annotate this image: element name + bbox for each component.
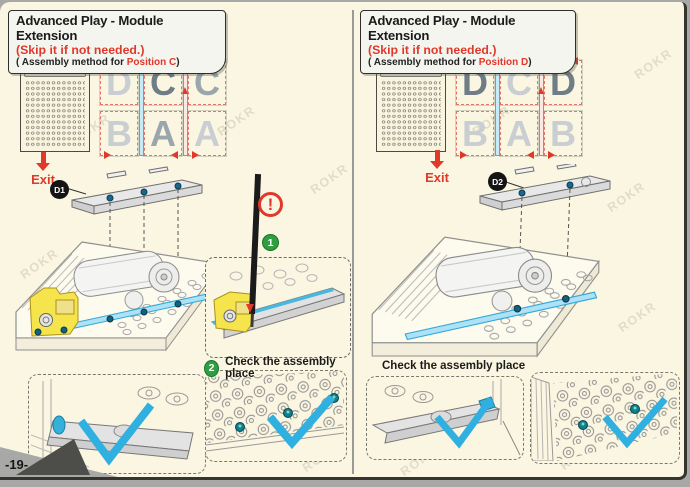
position-letter-cell: B: [100, 111, 138, 156]
panel-header: Advanced Play - Module Extension (Skip i…: [360, 10, 576, 74]
method-suffix: ): [176, 57, 179, 68]
exit-arrow-icon: [435, 150, 440, 161]
position-letter: B: [550, 116, 576, 152]
red-slot-strip: [183, 60, 188, 156]
panel-position-c: Advanced Play - Module Extension (Skip i…: [8, 10, 350, 476]
page-title: Advanced Play - Module Extension: [368, 13, 568, 43]
check-label: Check the assembly place: [382, 360, 525, 372]
insert-detail-box: [205, 257, 351, 358]
position-letter: B: [106, 116, 132, 152]
cyan-slot-strip: [495, 60, 500, 156]
step-badge: 1: [262, 234, 279, 251]
machine-illustration: [372, 237, 599, 356]
panel-header: Advanced Play - Module Extension (Skip i…: [8, 10, 226, 74]
position-letter-cell: A: [500, 111, 538, 156]
check-detail-box: [366, 376, 524, 460]
position-letter-cell: B: [456, 111, 494, 156]
position-letter-grid: D C C B A: [100, 60, 227, 156]
method-prefix: ( Assembly method for: [368, 57, 479, 68]
red-arrow-icon: [171, 151, 178, 159]
check-heading: 2 Check the assembly place: [204, 356, 350, 380]
skip-note: (Skip it if not needed.): [16, 43, 218, 57]
position-letter-cell: A: [144, 111, 182, 156]
insert-arrow-icon: [246, 304, 254, 313]
check-detail-illustration: [367, 377, 521, 457]
position-letter: A: [506, 116, 532, 152]
red-arrow-icon: [548, 151, 555, 159]
method-position: Position D: [479, 57, 528, 68]
part-badge: D2: [488, 172, 507, 191]
pegboard-illustration: [20, 62, 90, 152]
manual-page: ROKR ROKR ROKR ROKR ROKR ROKR ROKR ROKR …: [0, 0, 690, 487]
red-slot-strip: [539, 60, 544, 156]
insert-detail-illustration: [206, 258, 349, 356]
red-arrow-icon: [192, 151, 199, 159]
assembly-illustration: [360, 164, 682, 378]
method-line: ( Assembly method for Position D): [368, 57, 568, 69]
red-arrow-icon: [460, 151, 467, 159]
pegboard-illustration: [376, 62, 446, 152]
page-title: Advanced Play - Module Extension: [16, 13, 218, 43]
red-arrow-icon: [104, 151, 111, 159]
position-letter-cell: B: [544, 111, 582, 156]
warning-icon: !: [258, 192, 283, 217]
exit-arrow-icon: [41, 152, 46, 163]
pegboard-holes: [25, 80, 85, 147]
check-heading: Check the assembly place: [382, 360, 525, 372]
position-letter: A: [194, 116, 220, 152]
pegboard-holes: [381, 80, 441, 147]
page-number: -19-: [5, 457, 28, 472]
paper: ROKR ROKR ROKR ROKR ROKR ROKR ROKR ROKR …: [0, 2, 687, 480]
check-detail-illustration: [531, 373, 677, 461]
method-prefix: ( Assembly method for: [16, 57, 127, 68]
method-suffix: ): [528, 57, 531, 68]
part-badge: D1: [50, 180, 69, 199]
position-letter-grid: D C D B A: [456, 60, 583, 156]
cyan-slot-strip: [139, 60, 144, 156]
position-letter-cell: A: [188, 111, 226, 156]
check-detail-box: [205, 370, 347, 462]
position-letter: A: [150, 116, 176, 152]
skip-note: (Skip it if not needed.): [368, 43, 568, 57]
step-badge: 2: [204, 360, 219, 377]
check-detail-illustration: [206, 371, 344, 459]
check-label: Check the assembly place: [225, 356, 350, 380]
method-line: ( Assembly method for Position C): [16, 57, 218, 69]
machine-illustration: [16, 242, 222, 350]
rail-part: [72, 167, 202, 214]
check-detail-box: [530, 372, 680, 464]
red-arrow-icon: [527, 151, 534, 159]
panel-position-d: Advanced Play - Module Extension (Skip i…: [360, 10, 684, 476]
position-letter: B: [462, 116, 488, 152]
method-position: Position C: [127, 57, 176, 68]
